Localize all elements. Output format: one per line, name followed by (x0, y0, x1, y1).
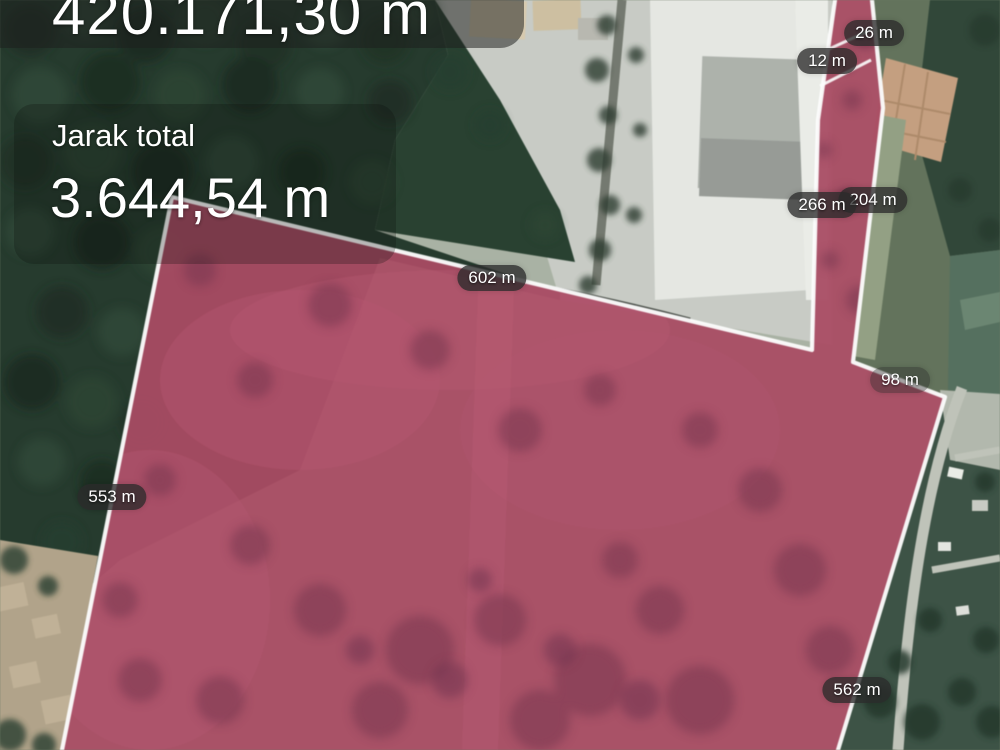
measure-app-screen: 420.171,30 m Jarak total 3.644,54 m 26 m… (0, 0, 1000, 750)
distance-pill-26m: 26 m (844, 20, 904, 46)
total-area-value: 420.171,30 m (52, 0, 431, 44)
total-distance-label: Jarak total (52, 120, 195, 151)
distance-pill-602m: 602 m (457, 265, 526, 291)
total-distance-value: 3.644,54 m (50, 170, 330, 226)
distance-pill-98m: 98 m (870, 367, 930, 393)
distance-pill-553m: 553 m (77, 484, 146, 510)
distance-pill-562m: 562 m (822, 677, 891, 703)
distance-pill-12m: 12 m (797, 48, 857, 74)
distance-pill-266m: 266 m (787, 192, 856, 218)
